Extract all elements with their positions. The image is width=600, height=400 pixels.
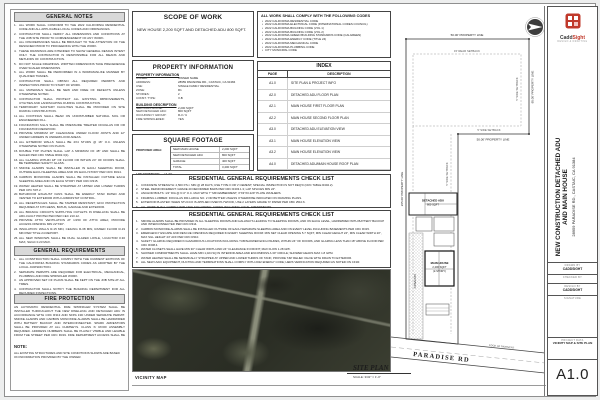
index-row-page: A3.2 — [258, 147, 288, 158]
dim-side-setback-right: 5' SIDE SETBACK — [515, 77, 519, 100]
index-row: A2.2 MAIN HOUSE SECOND FLOOR PLAN — [258, 113, 390, 125]
index-row-description: SITE PLAN & PROJECT INFO — [288, 81, 390, 85]
general-note-item: SMOKE ALARMS SHALL BE INSTALLED IN EACH … — [14, 167, 125, 175]
dim-side-setback-step: 5' SIDE SETBACK — [477, 128, 500, 132]
signature-label: SIGNATURE — [548, 296, 597, 300]
index-row-description: MAIN HOUSE FIRST FLOOR PLAN — [288, 104, 390, 108]
index-row: A3.2 MAIN HOUSE ELEVATION VIEW — [258, 147, 390, 159]
sheet-number: A1.0 — [548, 359, 597, 389]
titleblock-fields: DRAWN BY CADDSIGHT CHECKED BY DESIGN BY … — [548, 262, 597, 389]
index-row-description: MAIN HOUSE ELEVATION VIEW — [288, 150, 390, 154]
square-footage-row-value: 800 SQFT — [219, 153, 249, 158]
dim-side-setback-strip: 5' SIDE SETBACK — [445, 162, 449, 185]
general-requirements-list: ALL CONSTRUCTION SHALL COMPLY WITH THE C… — [14, 258, 125, 294]
index-row-page: A2.1 — [258, 101, 288, 112]
property-corner-marker — [528, 133, 530, 135]
general-notes-list: ALL WORK SHALL CONFORM TO THE 2022 CALIF… — [14, 24, 125, 246]
general-notes-header: GENERAL NOTES — [14, 12, 125, 22]
index-row-page: A4.0 — [258, 159, 288, 170]
index-title: INDEX — [258, 62, 390, 71]
site-plan-drawing: DRIVEWAY DETACHED ADU 800 SQFT MAIN HOUS… — [391, 9, 545, 381]
general-note-item: INSULATION: WALLS R-15 MIN, CEILING R-38… — [14, 228, 125, 236]
scope-of-work-box: SCOPE OF WORK NEW HOUSE 2,200 SQFT AND D… — [132, 11, 254, 57]
fire-protection-header: FIRE PROTECTION — [14, 294, 125, 304]
drawn-by-field: DRAWN BY CADDSIGHT — [548, 262, 597, 274]
index-row-page: A2.0 — [258, 90, 288, 101]
index-row-page: A3.1 — [258, 136, 288, 147]
adu-label: DETACHED ADU — [422, 199, 444, 203]
fire-protection-text: AN AUTOMATIC RESIDENTIAL FIRE SPRINKLER … — [14, 306, 125, 338]
square-footage-row-label: NEW DETACHED ADU — [171, 153, 219, 158]
code-item: CITY MUNICIPAL CODE — [261, 49, 387, 53]
index-row: A2.1 MAIN HOUSE FIRST FLOOR PLAN — [258, 101, 390, 113]
index-row-page: A2.2 — [258, 113, 288, 124]
checklist-item: ALL NEW HVAC EQUIPMENT, DUCTING AND TERM… — [136, 261, 387, 265]
general-note-item: ALL WORK SHALL CONFORM TO THE 2022 CALIF… — [14, 24, 125, 32]
patio-area — [434, 233, 454, 246]
property-information-title: PROPERTY INFORMATION — [136, 63, 250, 71]
drawing-sheet: GENERAL NOTES ALL WORK SHALL CONFORM TO … — [4, 3, 596, 397]
checklist-2-title: RESIDENTIAL GENERAL REQUIREMENTS CHECK L… — [136, 212, 387, 218]
vicinity-map-aerial-photo — [132, 269, 391, 372]
square-footage-row-label: NEW MAIN HOUSE — [171, 147, 219, 152]
project-data-field: PROJECT DATA VICINITY MAP & SITE PLAN — [548, 337, 597, 359]
property-corner-marker — [457, 133, 459, 135]
general-note-item: THESE DRAWINGS ARE INTENDED TO SHOW GENE… — [14, 50, 125, 62]
checklist-2-box: RESIDENTIAL GENERAL REQUIREMENTS CHECK L… — [132, 210, 391, 268]
square-footage-row-value: 3,400 SQFT — [219, 165, 249, 170]
property-information-box: PROPERTY INFORMATION PROPERTY INFORMATIO… — [132, 60, 254, 131]
accessory-structure — [416, 217, 432, 231]
dim-property-line-left: 265.00' PROPERTY LINE — [400, 172, 404, 206]
index-row: A3.0 DETACHED ADU ELEVATION VIEW — [258, 124, 390, 136]
porch-steps — [426, 304, 449, 315]
building-description-label: FIRE SPRINKLERED: — [136, 118, 178, 122]
index-row: A1.0 SITE PLAN & PROJECT INFO — [258, 78, 390, 90]
index-row-description: DETACHED ADU FLOOR PLAN — [288, 93, 390, 97]
general-note-item: ALL EXTERIOR WALLS SHALL BE 2X4 STUDS @ … — [14, 141, 125, 149]
general-note-item: ALL RECEPTACLES SHALL BE TAMPER RESISTAN… — [14, 202, 125, 210]
index-row-page: A1.0 — [258, 78, 288, 89]
site-plan-title-block: SITE PLAN SCALE: 3/32" = 1'-0" — [353, 364, 423, 379]
design-by-value: CADDSIGHT — [548, 288, 597, 292]
general-note-item: ALL FOOTINGS SHALL BEAR ON UNDISTURBED N… — [14, 115, 125, 123]
main-house-story-label: (2-STORY) — [433, 269, 446, 273]
property-line-boundary — [406, 39, 529, 344]
checked-by-label: CHECKED BY — [548, 275, 597, 279]
square-footage-row-value: 2,200 SQFT — [219, 147, 249, 152]
vicinity-map-label: VICINITY MAP — [135, 375, 167, 380]
general-notes-column: GENERAL NOTES ALL WORK SHALL CONFORM TO … — [10, 9, 129, 391]
property-corner-marker — [528, 38, 530, 40]
site-plan-title-underline — [347, 373, 411, 374]
property-info-rows: OWNER: OWNER NAME ADDRESS: 28959 PARADIS… — [136, 77, 250, 101]
project-title-vertical: NEW CONSTRUCTION DETACHED ADU AND MAIN H… — [555, 132, 585, 262]
dim-property-line-step: 50.00' PROPERTY LINE — [477, 138, 510, 142]
titleblock-divider-line — [544, 6, 545, 396]
index-page-header: PAGE — [258, 71, 288, 77]
property-info-label: CONST. TYPE: — [136, 97, 178, 101]
project-address: 28959 PARADISE RD., CASTAIC, CA 91384 — [571, 132, 576, 262]
accessory-structure — [434, 217, 454, 231]
checklist-2-items: SMOKE ALARMS SHALL BE PROVIDED IN ALL SL… — [136, 220, 387, 265]
caddsight-logo-icon — [565, 13, 581, 29]
index-row: A4.0 DETACHED ADU/MAIN HOUSE ROOF PLAN — [258, 159, 390, 171]
checked-by-field: CHECKED BY — [548, 274, 597, 283]
square-footage-row: TOTAL 3,400 SQFT — [171, 165, 249, 170]
codes-box: ALL WORK SHALL COMPLY WITH THE FOLLOWING… — [257, 11, 391, 58]
square-footage-title: SQUARE FOOTAGE — [136, 136, 250, 144]
main-house-label: MAIN HOUSE — [431, 261, 449, 265]
company-logo: CaddSight DESIGN & DRAFTING — [548, 13, 597, 43]
index-row: A3.1 MAIN HOUSE ELEVATION VIEW — [258, 136, 390, 148]
index-row: A2.0 DETACHED ADU FLOOR PLAN — [258, 90, 390, 102]
square-footage-side-label: PROPOSED AREA: — [136, 146, 170, 171]
signature-field: SIGNATURE — [548, 295, 597, 337]
building-description-value: YES — [178, 118, 250, 122]
general-note-item: ALL NEW WINDOWS SHALL BE DUAL GLAZED LOW… — [14, 237, 125, 245]
scope-of-work-title: SCOPE OF WORK — [133, 12, 253, 21]
note-text: ALL EXISTING STRUCTURES AND SITE CONDITI… — [14, 351, 125, 359]
index-rows: A1.0 SITE PLAN & PROJECT INFO A2.0 DETAC… — [258, 78, 390, 170]
square-footage-table: NEW MAIN HOUSE 2,200 SQFT NEW DETACHED A… — [170, 146, 250, 171]
building-description-row: FIRE SPRINKLERED: YES — [136, 118, 250, 122]
setback-line-rect — [413, 54, 521, 126]
index-description-header: DESCRIPTION — [288, 71, 390, 77]
building-description-rows: NEW MAIN HOUSE: 2,200 SQFT NEW DETACHED … — [136, 107, 250, 123]
square-footage-row-label: GARAGE — [171, 159, 219, 164]
dim-rear-setback: 15' REAR SETBACK — [454, 49, 480, 53]
project-data-value: VICINITY MAP & SITE PLAN — [548, 342, 597, 346]
sheet-index-table: INDEX PAGE DESCRIPTION A1.0 SITE PLAN & … — [257, 61, 391, 171]
general-requirements-header: GENERAL REQUIREMENTS — [14, 246, 125, 256]
checklist-1-items: CONCRETE STRENGTH: 2,500 P.S.I. MIN @ 28… — [136, 184, 387, 210]
dim-property-line-right: 95.00' PROPERTY LINE — [531, 71, 535, 104]
drawn-by-value: CADDSIGHT — [548, 267, 597, 271]
site-plan-title: SITE PLAN — [353, 364, 423, 372]
checklist-item: SMOKE ALARMS SHALL BE PROVIDED IN ALL SL… — [136, 220, 387, 227]
general-note-item: TEMPORARY SANITARY FACILITIES SHALL BE P… — [14, 106, 125, 114]
square-footage-box: SQUARE FOOTAGE PROPOSED AREA: NEW MAIN H… — [132, 134, 254, 171]
north-arrow-icon — [526, 18, 545, 37]
property-info-value: V-B — [178, 97, 250, 101]
checklist-1-box: RESIDENTIAL GENERAL REQUIREMENTS CHECK L… — [132, 174, 391, 208]
scope-of-work-text: NEW HOUSE 2,200 SQFT AND DETACHED ADU 80… — [133, 21, 253, 33]
index-row-description: MAIN HOUSE SECOND FLOOR PLAN — [288, 116, 390, 120]
general-requirement-item: CONTRACTOR SHALL NOTIFY THE BUILDING DEP… — [14, 288, 125, 294]
note-label: NOTE: — [14, 344, 125, 349]
general-note-item: ALL MATERIALS SHALL BE NEW AND FREE OF D… — [14, 89, 125, 97]
checklist-1-title: RESIDENTIAL GENERAL REQUIREMENTS CHECK L… — [136, 176, 387, 182]
index-row-description: MAIN HOUSE ELEVATION VIEW — [288, 139, 390, 143]
general-note-item: DOUBLE TOP PLATES SHALL LAP A MINIMUM OF… — [14, 150, 125, 158]
driveway-label: DRIVEWAY — [413, 274, 417, 289]
general-note-item: CONTRACTOR SHALL OBTAIN ALL REQUIRED PER… — [14, 80, 125, 88]
adu-area-label: 800 SQFT — [427, 203, 439, 207]
index-row-description: DETACHED ADU/MAIN HOUSE ROOF PLAN — [288, 162, 390, 166]
square-footage-row-label: TOTAL — [171, 165, 219, 170]
general-requirement-item: ALL CONSTRUCTION SHALL COMPLY WITH THE C… — [14, 258, 125, 270]
main-house-area-label: 2,200 SQFT — [432, 265, 447, 269]
index-header-row: PAGE DESCRIPTION — [258, 71, 390, 78]
square-footage-row-value: 400 SQFT — [219, 159, 249, 164]
logo-tagline: DESIGN & DRAFTING — [548, 41, 597, 43]
codes-title: ALL WORK SHALL COMPLY WITH THE FOLLOWING… — [261, 14, 387, 18]
index-row-page: A3.0 — [258, 124, 288, 135]
checklist-item: ALL WORK SHALL COMPLY WITH THE FOLLOWING… — [136, 206, 387, 210]
dim-property-line-top: 50.00' PROPERTY LINE — [451, 33, 484, 37]
project-title: NEW CONSTRUCTION DETACHED ADU AND MAIN H… — [555, 132, 569, 262]
property-corner-marker — [405, 38, 407, 40]
title-block: CaddSight DESIGN & DRAFTING NEW CONSTRUC… — [547, 6, 598, 396]
general-note-item: CARBON MONOXIDE ALARMS SHALL BE INSTALLE… — [14, 176, 125, 184]
index-row-description: DETACHED ADU ELEVATION VIEW — [288, 127, 390, 131]
property-info-row: CONST. TYPE: V-B — [136, 97, 250, 101]
sheet-divider-line — [132, 385, 546, 386]
codes-list: 2022 CALIFORNIA RESIDENTIAL CODE2022 CAL… — [261, 20, 387, 53]
site-plan-scale: SCALE: 3/32" = 1'-0" — [353, 375, 423, 379]
design-by-field: DESIGN BY CADDSIGHT — [548, 283, 597, 295]
